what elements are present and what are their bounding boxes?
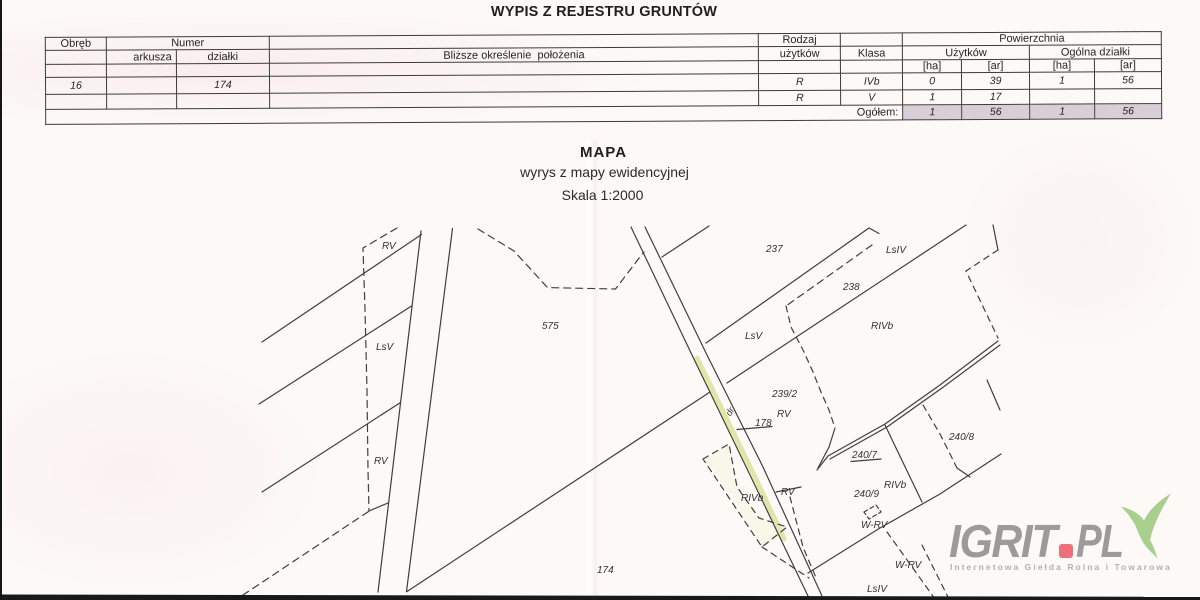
svg-text:RV: RV (374, 456, 389, 467)
svg-text:240/9: 240/9 (853, 489, 879, 500)
svg-text:178: 178 (755, 418, 772, 429)
svg-text:W-RV: W-RV (861, 520, 889, 531)
svg-text:240/8: 240/8 (948, 432, 974, 443)
svg-text:W-RV: W-RV (895, 560, 923, 571)
svg-text:238: 238 (842, 282, 860, 293)
svg-text:LsIV: LsIV (867, 584, 888, 595)
svg-text:LsV: LsV (745, 331, 764, 342)
svg-text:LsV: LsV (376, 342, 395, 353)
svg-text:174: 174 (597, 565, 614, 576)
svg-text:240/7: 240/7 (851, 450, 877, 461)
svg-text:LsIV: LsIV (886, 245, 907, 256)
svg-text:RV: RV (777, 409, 792, 420)
svg-text:RIVb: RIVb (871, 321, 894, 332)
svg-text:575: 575 (542, 321, 559, 332)
svg-text:RIVb: RIVb (741, 493, 764, 504)
svg-text:239/2: 239/2 (771, 389, 797, 400)
svg-text:RIVb: RIVb (884, 480, 907, 491)
svg-text:RV: RV (382, 241, 397, 252)
svg-text:237: 237 (765, 244, 783, 255)
svg-text:RV: RV (781, 487, 796, 498)
